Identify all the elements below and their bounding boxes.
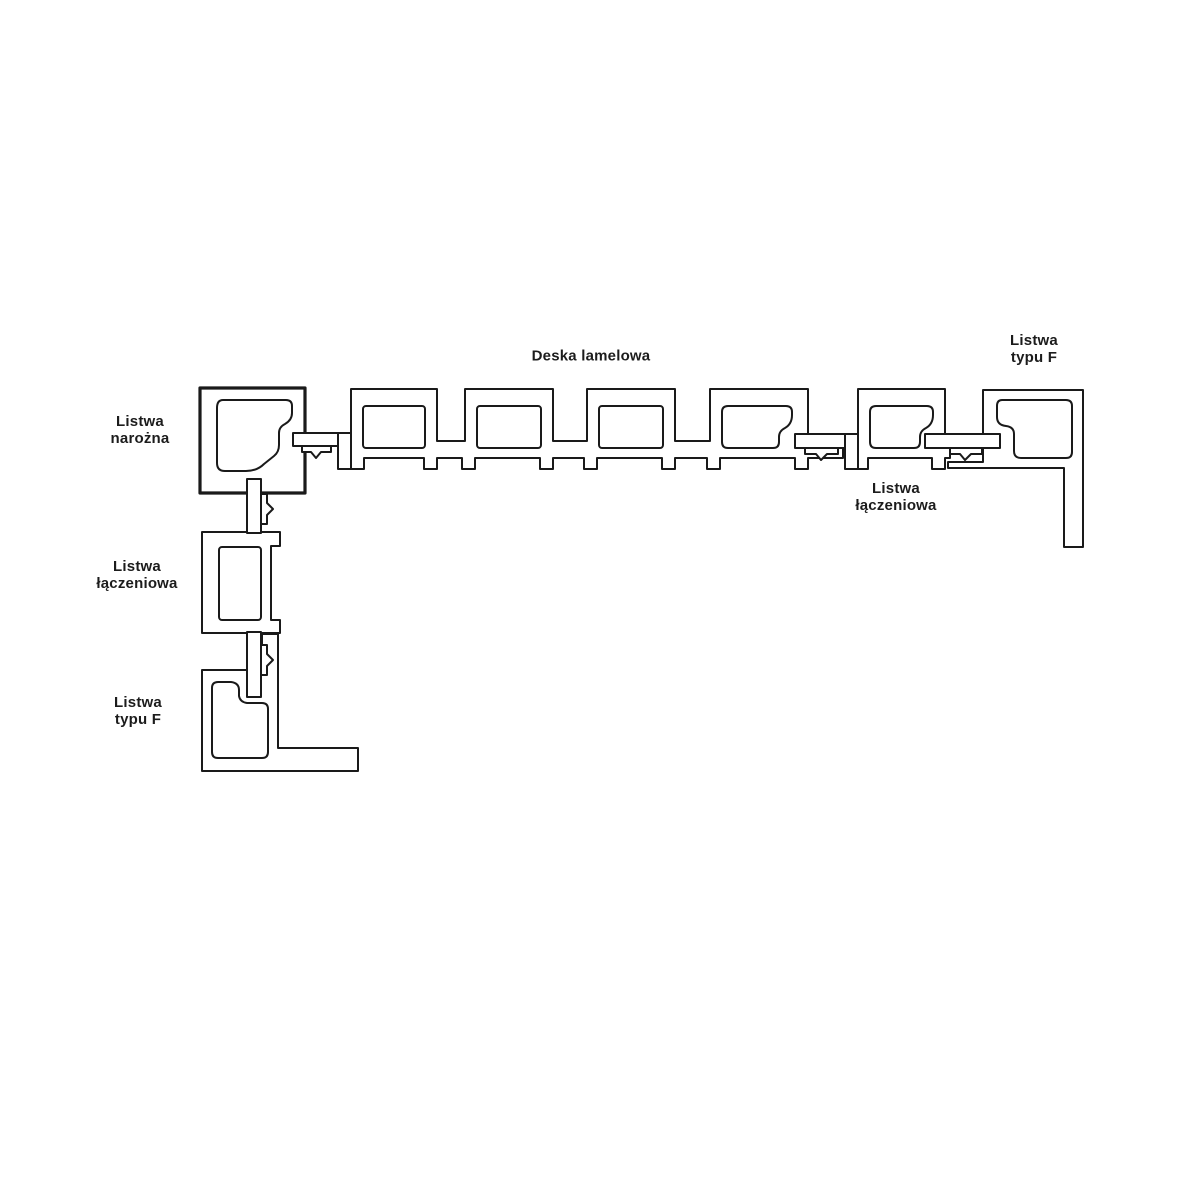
slat-wall-profiles-drawing bbox=[0, 0, 1200, 1200]
lamella-board-profile-short bbox=[855, 389, 950, 469]
connector-clip bbox=[950, 448, 982, 460]
slat-chamber bbox=[363, 406, 425, 448]
slat-chamber bbox=[599, 406, 663, 448]
label-text: łączeniowa bbox=[96, 575, 177, 592]
profile-diagram: Deska lamelowa Listwa typu F Listwa naro… bbox=[0, 0, 1200, 1200]
label-text: Deska lamelowa bbox=[532, 348, 651, 365]
label-listwa-typu-f-right: Listwa typu F bbox=[1010, 332, 1058, 366]
label-text: łączeniowa bbox=[855, 497, 936, 514]
f-strip-profile-right bbox=[948, 390, 1083, 547]
label-text: typu F bbox=[1010, 349, 1058, 366]
board-end-groove-bar bbox=[845, 434, 858, 469]
slat-chamber bbox=[219, 547, 261, 620]
connector-board-profile-vertical bbox=[202, 532, 280, 633]
label-text: Listwa bbox=[855, 480, 936, 497]
label-text: Listwa bbox=[96, 558, 177, 575]
label-text: Listwa bbox=[111, 413, 170, 430]
corner-strip-profile bbox=[200, 388, 305, 493]
label-listwa-laczeniowa-right: Listwa łączeniowa bbox=[855, 480, 936, 514]
label-text: Listwa bbox=[114, 694, 162, 711]
label-text: typu F bbox=[114, 711, 162, 728]
label-deska-lamelowa: Deska lamelowa bbox=[532, 348, 651, 365]
label-text: narożna bbox=[111, 430, 170, 447]
slat-chamber bbox=[477, 406, 541, 448]
label-text: Listwa bbox=[1010, 332, 1058, 349]
label-listwa-narozna: Listwa narożna bbox=[111, 413, 170, 447]
lamella-board-profile bbox=[351, 389, 843, 469]
f-strip-profile-left bbox=[202, 634, 358, 771]
label-listwa-typu-f-left: Listwa typu F bbox=[114, 694, 162, 728]
board-end-groove-bar bbox=[338, 433, 351, 469]
label-listwa-laczeniowa-left: Listwa łączeniowa bbox=[96, 558, 177, 592]
connector-clip bbox=[261, 494, 273, 524]
